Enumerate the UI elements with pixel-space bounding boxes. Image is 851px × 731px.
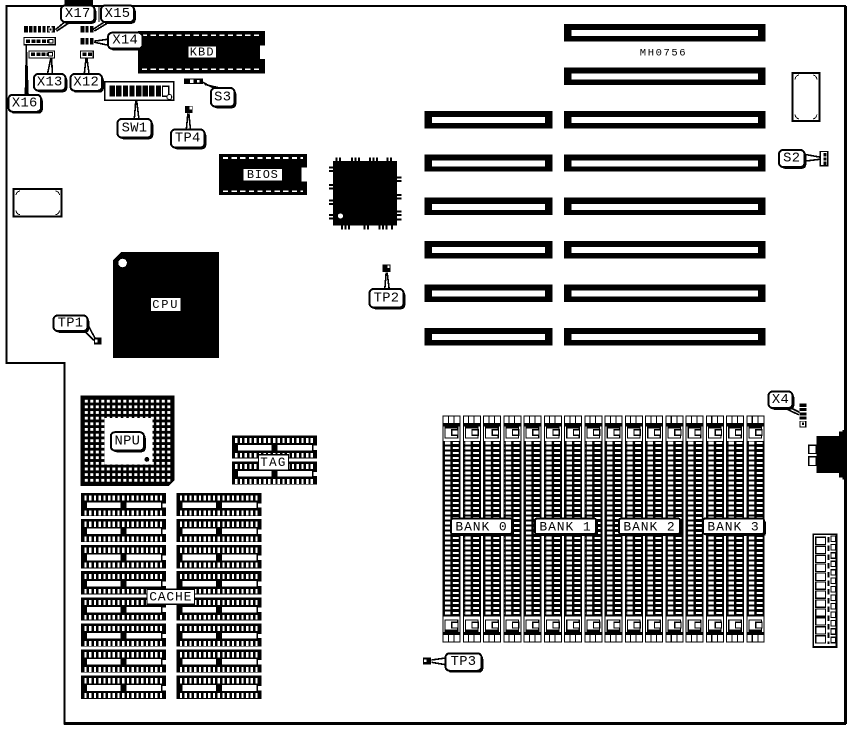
svg-text:X17: X17 (65, 7, 91, 22)
svg-text:MH0756: MH0756 (640, 48, 687, 60)
svg-text:X16: X16 (12, 96, 38, 111)
svg-text:BANK 3: BANK 3 (707, 519, 759, 534)
svg-text:X13: X13 (37, 75, 63, 90)
svg-text:S2: S2 (783, 152, 800, 167)
svg-text:CACHE: CACHE (149, 590, 192, 605)
svg-text:TP2: TP2 (374, 291, 400, 306)
svg-text:TAG: TAG (260, 456, 286, 470)
svg-text:S3: S3 (214, 90, 231, 105)
svg-text:TP1: TP1 (58, 316, 84, 331)
svg-text:X15: X15 (105, 7, 131, 22)
svg-text:TP4: TP4 (175, 132, 201, 147)
svg-text:BANK 1: BANK 1 (539, 519, 591, 534)
svg-text:TP3: TP3 (451, 655, 477, 670)
svg-text:BANK 2: BANK 2 (623, 519, 675, 534)
svg-text:X12: X12 (73, 75, 99, 90)
svg-text:KBD: KBD (190, 45, 215, 59)
svg-text:X4: X4 (772, 393, 789, 408)
svg-text:BANK 0: BANK 0 (455, 519, 507, 534)
svg-text:NPU: NPU (115, 434, 141, 449)
svg-text:SW1: SW1 (122, 121, 148, 136)
svg-text:CPU: CPU (152, 298, 179, 312)
svg-text:X14: X14 (112, 34, 138, 49)
svg-text:BIOS: BIOS (247, 168, 279, 182)
